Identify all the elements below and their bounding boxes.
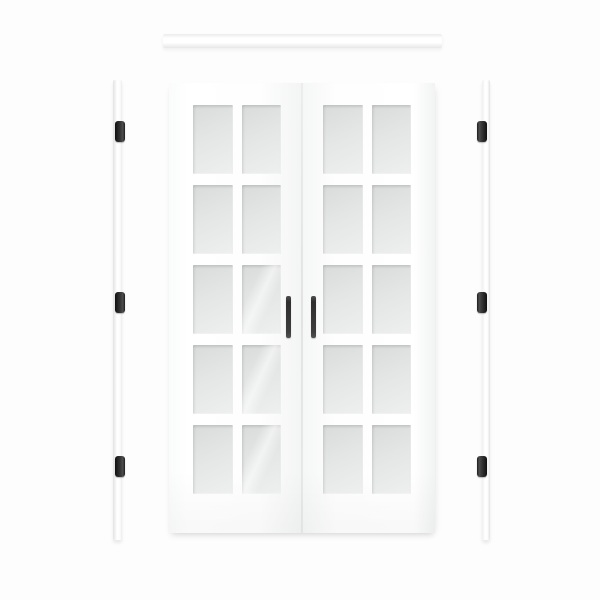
glass-lite [323,345,363,414]
hinge [477,456,487,477]
glass-lite [242,105,282,174]
glass-lite [193,185,233,254]
glass-lite [323,265,363,334]
glass-lite [372,185,412,254]
glass-lite [372,345,412,414]
left-door-handle [286,296,291,338]
left-side-jamb [113,80,122,540]
left-door-panel [169,83,302,533]
glass-lite [323,425,363,494]
door-frame-header-jamb [163,34,442,48]
glass-lite [242,265,282,334]
glass-lite [242,425,282,494]
right-door-handle [311,296,316,338]
left-door-lite-grid [193,105,281,494]
glass-lite [242,345,282,414]
right-door-lite-grid [323,105,411,494]
hinge [115,292,125,313]
glass-lite [372,265,412,334]
hinge [115,121,125,142]
glass-lite [193,345,233,414]
right-door-panel [302,83,435,533]
glass-lite [193,265,233,334]
hinge [477,292,487,313]
glass-lite [372,105,412,174]
glass-lite [193,105,233,174]
hinge [477,121,487,142]
glass-lite [372,425,412,494]
hinge [115,456,125,477]
glass-lite [323,105,363,174]
product-image[interactable] [0,0,600,600]
door-meeting-seam [301,83,303,533]
glass-lite [323,185,363,254]
right-side-jamb [482,80,490,540]
glass-lite [242,185,282,254]
glass-lite [193,425,233,494]
double-door-unit [169,83,435,533]
